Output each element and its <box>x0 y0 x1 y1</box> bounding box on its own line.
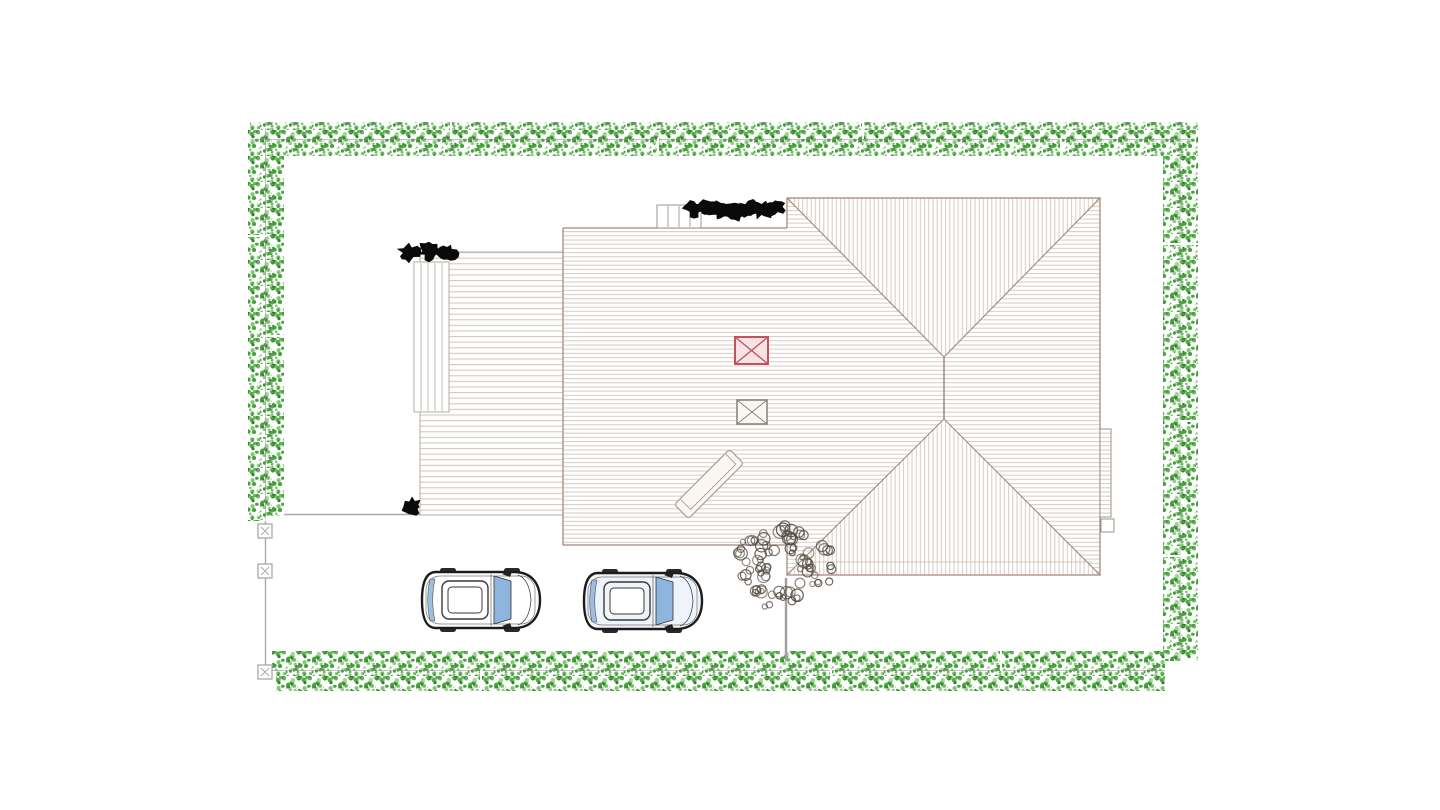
fence-post <box>258 665 272 679</box>
building-left-roof <box>563 228 787 545</box>
deck <box>414 252 563 515</box>
site-plan-canvas <box>0 0 1440 810</box>
deck-stair-strip <box>414 262 449 412</box>
fence-post <box>258 564 272 578</box>
site-plan-page <box>0 0 1440 810</box>
car-1 <box>422 568 540 632</box>
car-2 <box>584 569 702 633</box>
red-crossed-skylight <box>735 337 768 364</box>
fence-post <box>258 524 272 538</box>
gray-crossed-skylight <box>737 400 767 424</box>
building <box>563 198 1114 575</box>
